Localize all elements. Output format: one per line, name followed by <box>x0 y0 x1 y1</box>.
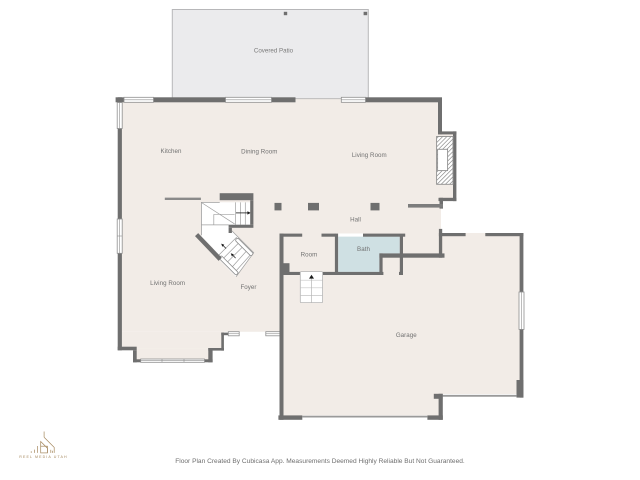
svg-text:Hall: Hall <box>350 217 361 224</box>
svg-text:Kitchen: Kitchen <box>161 148 182 155</box>
svg-text:Dining Room: Dining Room <box>241 149 277 156</box>
svg-text:Living Room: Living Room <box>150 280 185 287</box>
svg-text:REEL MEDIA UTAH: REEL MEDIA UTAH <box>19 455 67 459</box>
svg-text:Foyer: Foyer <box>240 284 256 291</box>
svg-text:Floor Plan Created By Cubicasa: Floor Plan Created By Cubicasa App. Meas… <box>175 458 465 465</box>
svg-text:Bath: Bath <box>357 246 370 253</box>
svg-text:Living Room: Living Room <box>352 152 387 159</box>
svg-text:Room: Room <box>301 252 318 259</box>
svg-text:Covered Patio: Covered Patio <box>254 48 294 55</box>
svg-text:Garage: Garage <box>396 332 417 339</box>
